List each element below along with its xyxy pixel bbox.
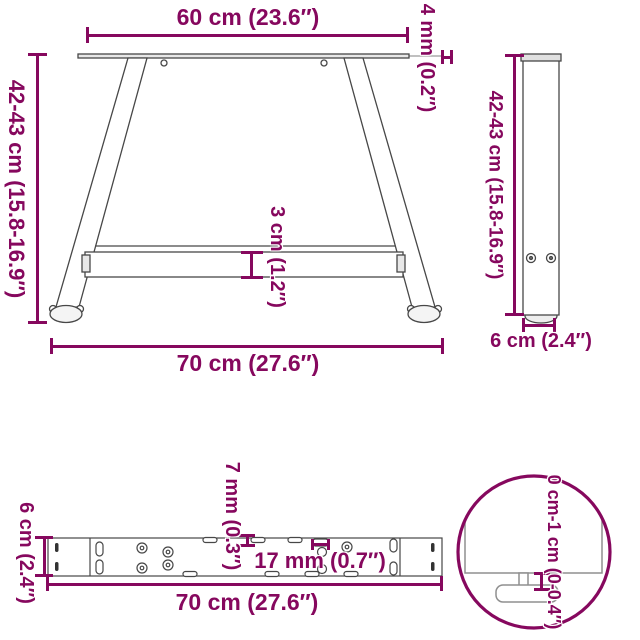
dim-crossbar-label: 3 cm (1.2″)	[267, 206, 287, 308]
dim-adjust-label: 0 cm-1 cm (0-0.4″)	[545, 475, 563, 630]
dim-side-height-line	[513, 56, 516, 315]
dim-front-height-tick-bottom	[28, 321, 47, 324]
cap-slot	[431, 543, 435, 552]
dim-beam-length-tick-left	[46, 576, 49, 591]
dim-top-width-tick-right	[406, 27, 409, 43]
table-leg-dimension-diagram: 60 cm (23.6″) 4 mm (0.2″) 42-43 cm (15.8…	[0, 0, 640, 640]
dim-beam-depth-line	[43, 538, 46, 577]
beam-ring-hole-center	[166, 563, 170, 567]
beam-edge-slot	[203, 538, 217, 543]
dim-beam-slot-label: 17 mm (0.7″)	[254, 550, 386, 572]
cap-slot	[55, 562, 59, 571]
cap-slot	[55, 543, 59, 552]
dim-side-height-tick-bottom	[505, 313, 524, 316]
dim-beam-depth-tick-bottom	[35, 574, 53, 577]
beam-ring-hole-center	[140, 566, 144, 570]
dim-beam-depth-label: 6 cm (2.4″)	[16, 502, 36, 604]
dim-side-depth-label: 6 cm (2.4″)	[490, 331, 592, 351]
side-view-drawing	[521, 54, 561, 323]
dim-side-height-label: 42-43 cm (15.8-16.9″)	[486, 91, 505, 280]
plate-screw-left	[161, 60, 167, 66]
detail-view-drawing	[465, 460, 602, 602]
crossbar-bracket-left	[82, 255, 90, 272]
front-right-foot-pad	[408, 306, 440, 323]
dim-front-height-line	[36, 55, 39, 323]
dim-top-width-label: 60 cm (23.6″)	[177, 6, 320, 29]
beam-ring-hole-center	[166, 550, 170, 554]
side-screw-hole-center	[550, 257, 553, 260]
dim-bottom-width-tick-right	[441, 338, 444, 354]
beam-edge-slot	[183, 572, 197, 577]
front-view-drawing	[50, 54, 442, 323]
front-left-foot-pad	[50, 306, 82, 323]
dim-beam-length-tick-right	[440, 576, 443, 591]
dim-beam-hole-label: 7 mm (0.3″)	[222, 462, 242, 571]
dim-beam-depth-tick-top	[35, 536, 53, 539]
dim-bottom-width-line	[52, 345, 443, 348]
crossbar	[85, 252, 403, 277]
beam-edge-slot	[251, 538, 265, 543]
cap-slot	[431, 562, 435, 571]
dim-beam-length-line	[48, 583, 442, 586]
side-leg-body	[523, 60, 559, 315]
dim-plate-thickness-tick-bottom	[450, 50, 453, 64]
dim-plate-thickness-tick-top	[441, 50, 444, 64]
dim-crossbar-tick-bottom	[241, 276, 263, 279]
dim-plate-thickness-label: 4 mm (0.2″)	[417, 4, 437, 113]
dim-crossbar-line	[250, 253, 253, 278]
dim-front-height-tick-top	[28, 53, 47, 56]
beam-edge-slot	[288, 538, 302, 543]
side-screw-hole-center	[530, 257, 533, 260]
dim-beam-length-label: 70 cm (27.6″)	[176, 591, 319, 614]
dim-top-width-line	[87, 34, 408, 37]
dim-side-height-tick-top	[505, 54, 524, 57]
dim-front-height-label: 42-43 cm (15.8-16.9″)	[5, 80, 27, 298]
dim-bottom-width-label: 70 cm (27.6″)	[177, 352, 320, 375]
crossbar-bracket-right	[397, 255, 405, 272]
beam-slot-hole	[390, 539, 397, 552]
dim-bottom-width-tick-left	[50, 338, 53, 354]
dim-side-depth-line	[524, 324, 555, 327]
beam-slot-hole	[390, 562, 397, 575]
beam-slot-hole	[96, 560, 103, 574]
beam-ring-hole-center	[140, 546, 144, 550]
beam-slot-hole	[96, 542, 103, 556]
side-top-cap	[521, 54, 561, 61]
dim-crossbar-tick-top	[241, 251, 263, 254]
dim-top-width-tick-left	[86, 27, 89, 43]
plate-screw-right	[321, 60, 327, 66]
